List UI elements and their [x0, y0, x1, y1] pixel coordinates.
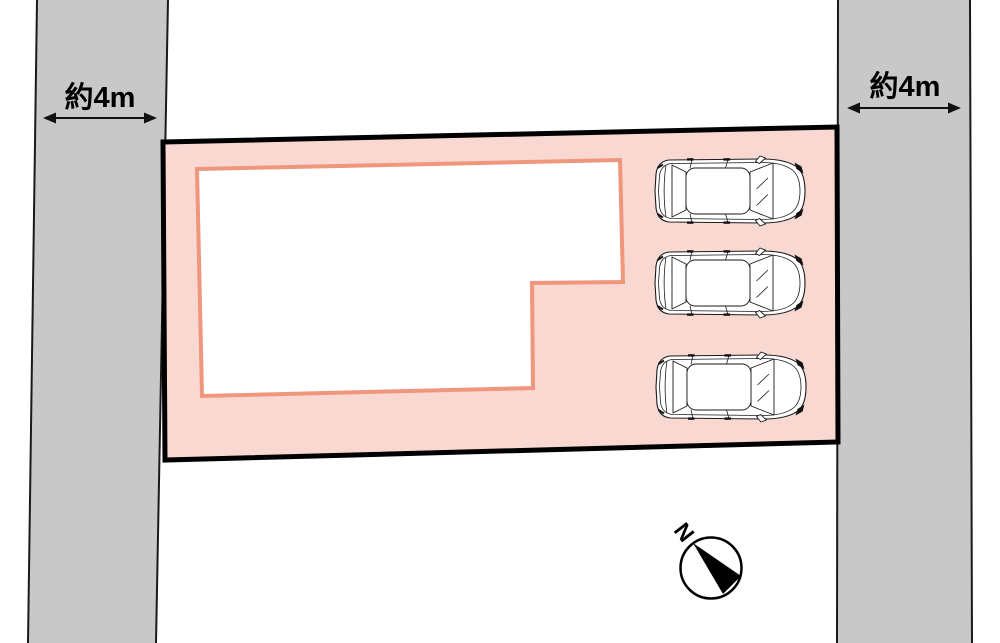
parked-car-2	[655, 248, 805, 318]
parked-car-1	[655, 156, 805, 226]
right-road-width-label: 約4m	[870, 69, 941, 103]
left-road-width-label: 約4m	[65, 80, 136, 114]
site-plan-canvas: 約4m 約4m N	[0, 0, 1000, 643]
site-plan: 約4m 約4m N	[0, 0, 1000, 643]
compass: N	[669, 518, 742, 599]
parked-car-3	[656, 352, 806, 422]
